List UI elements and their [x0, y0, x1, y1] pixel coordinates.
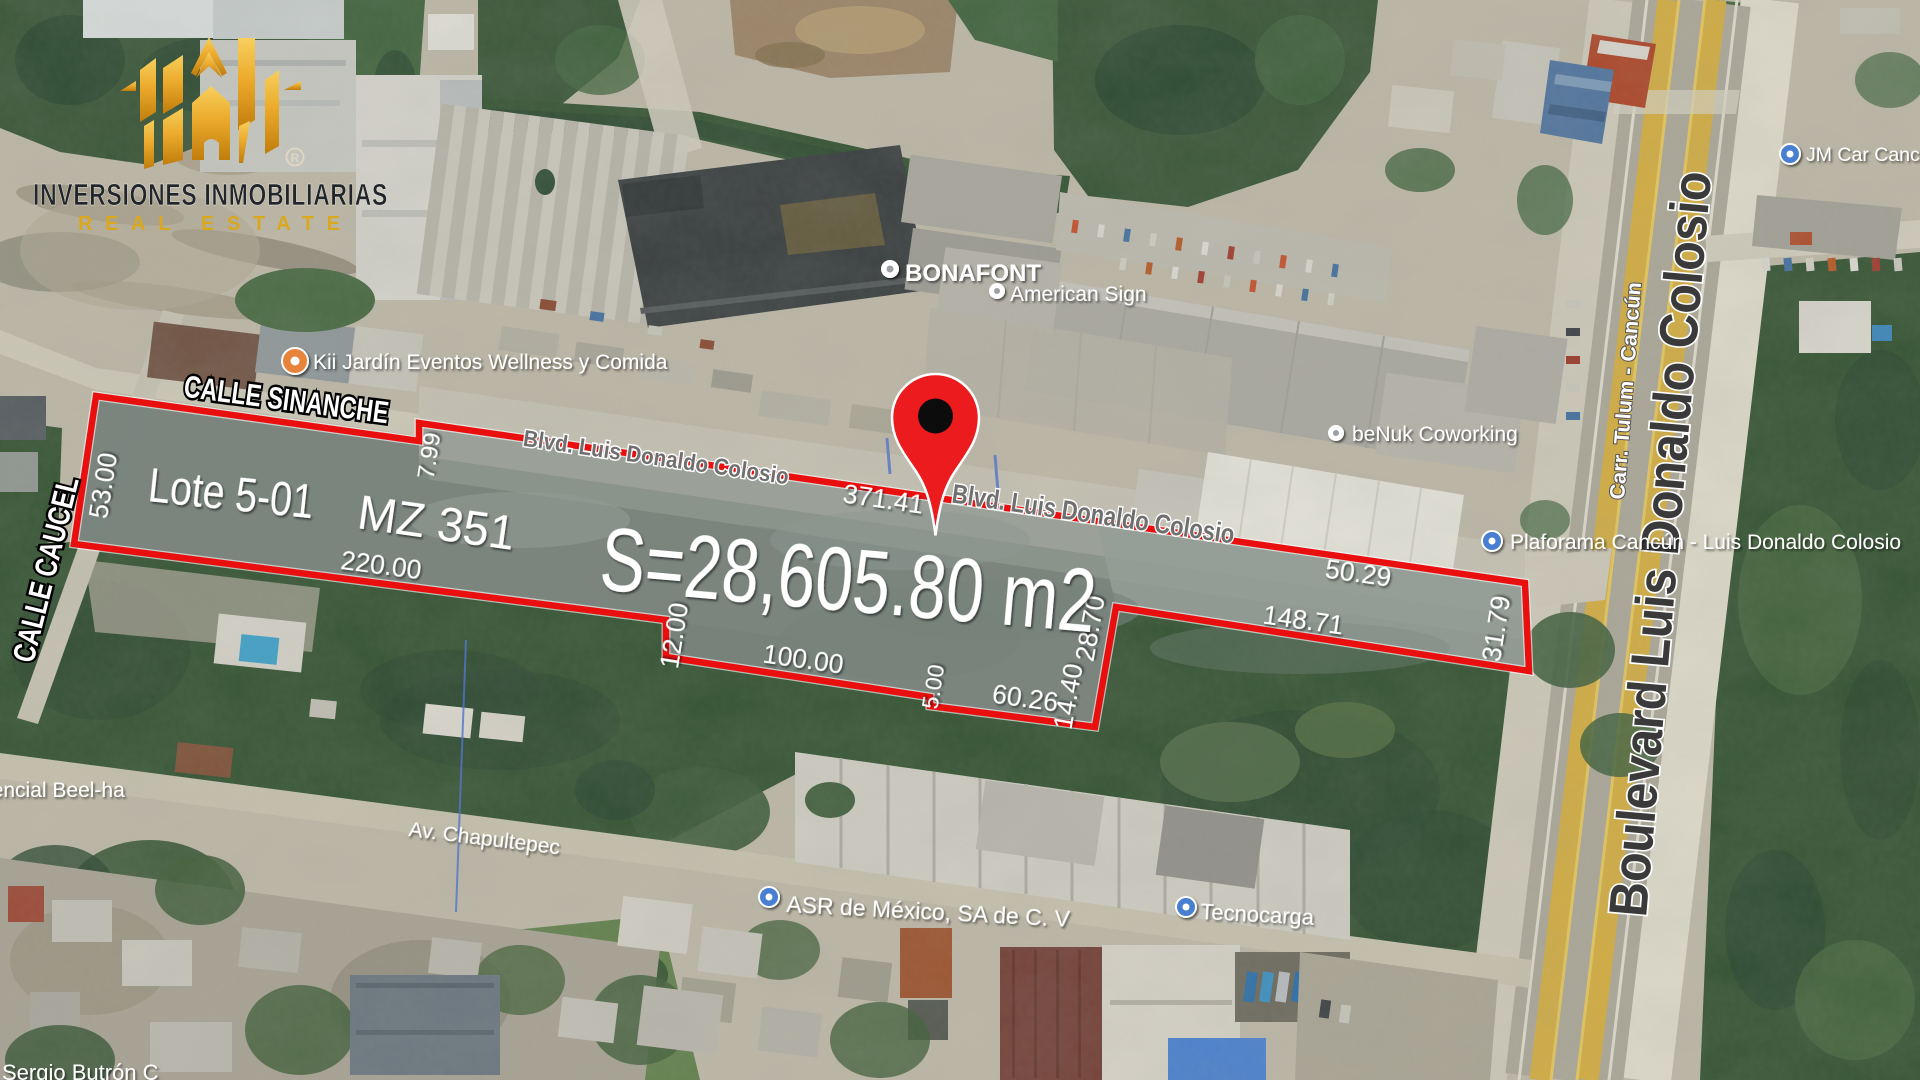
svg-text:Plaforama Cancún - Luis Donald: Plaforama Cancún - Luis Donaldo Colosio — [1510, 531, 1901, 554]
svg-text:Residencial Beel-ha: Residencial Beel-ha — [0, 779, 125, 802]
svg-text:R: R — [291, 151, 300, 165]
svg-text:JM Car Cancún: JM Car Cancún — [1806, 144, 1920, 166]
svg-text:American Sign: American Sign — [1010, 283, 1147, 306]
svg-text:Kii Jardín Eventos Wellness y: Kii Jardín Eventos Wellness y Comida — [313, 351, 668, 374]
svg-text:Sergio Butrón C: Sergio Butrón C — [2, 1060, 159, 1080]
svg-text:INVERSIONES INMOBILIARIAS: INVERSIONES INMOBILIARIAS — [33, 177, 388, 212]
svg-text:beNuk Coworking: beNuk Coworking — [1352, 423, 1518, 446]
